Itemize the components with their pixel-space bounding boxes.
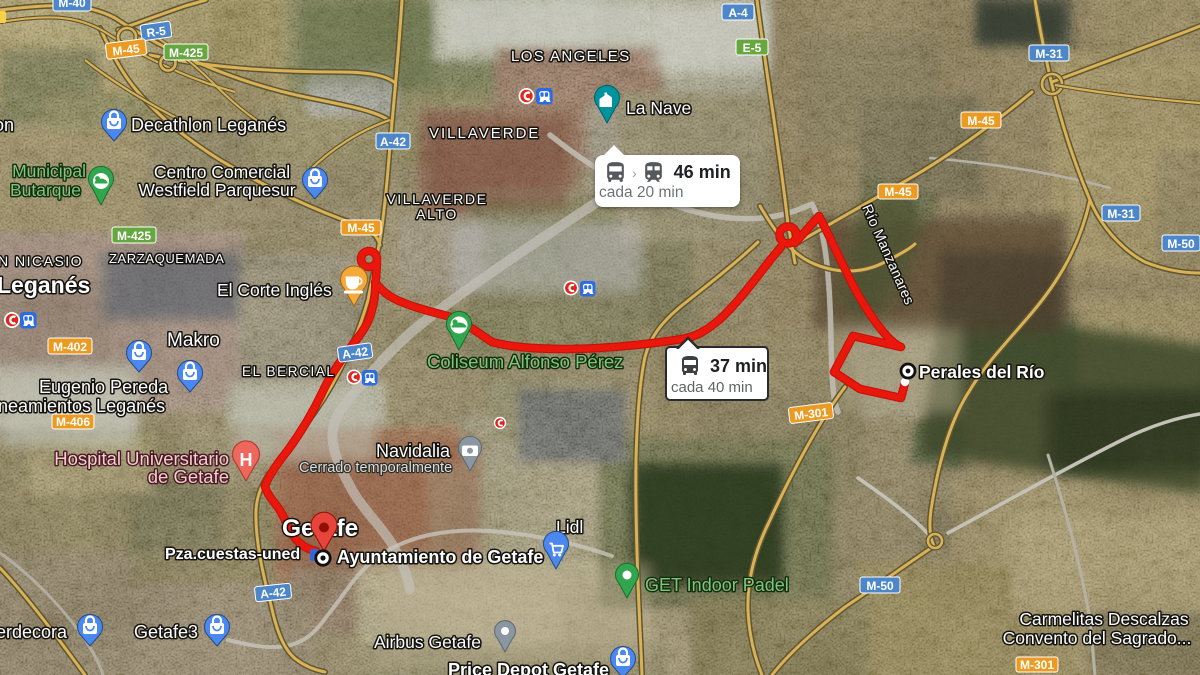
svg-text:A-4: A-4 bbox=[728, 6, 748, 20]
svg-text:Airbus Getafe: Airbus Getafe bbox=[374, 632, 481, 652]
svg-text:M-425: M-425 bbox=[169, 46, 203, 60]
svg-text:A-42: A-42 bbox=[259, 585, 287, 602]
svg-text:Price Depot Getafe: Price Depot Getafe bbox=[448, 660, 609, 675]
svg-text:Navidalia: Navidalia bbox=[376, 441, 451, 461]
svg-text:M-31: M-31 bbox=[1107, 207, 1135, 221]
svg-text:Convento del Sagrado...: Convento del Sagrado... bbox=[1003, 628, 1192, 648]
svg-text:de Getafe: de Getafe bbox=[148, 466, 229, 487]
svg-text:Westfield Parquesur: Westfield Parquesur bbox=[138, 180, 295, 200]
svg-text:GET Indoor Padel: GET Indoor Padel bbox=[645, 575, 789, 595]
svg-text:ALTO: ALTO bbox=[416, 206, 458, 222]
svg-text:Municipal: Municipal bbox=[12, 161, 86, 181]
svg-text:M-45: M-45 bbox=[967, 114, 995, 128]
svg-text:M-45: M-45 bbox=[347, 221, 375, 235]
svg-text:M-45: M-45 bbox=[884, 185, 912, 199]
svg-text:neamientos Leganés: neamientos Leganés bbox=[0, 396, 165, 416]
svg-text:M-50: M-50 bbox=[1167, 237, 1195, 251]
svg-text:Decathlon Leganés: Decathlon Leganés bbox=[131, 115, 286, 135]
svg-text:H: H bbox=[240, 450, 253, 470]
svg-text:Pza.cuestas-uned: Pza.cuestas-uned bbox=[165, 546, 300, 563]
svg-text:E-5: E-5 bbox=[743, 41, 762, 55]
svg-text:Eugenio Pereda: Eugenio Pereda bbox=[39, 377, 169, 397]
svg-text:Ayuntamiento de Getafe: Ayuntamiento de Getafe bbox=[337, 547, 543, 567]
svg-text:Perales del Río: Perales del Río bbox=[919, 362, 1044, 382]
svg-text:Cerrado temporalmente: Cerrado temporalmente bbox=[299, 460, 452, 476]
svg-text:Centro Comercial: Centro Comercial bbox=[154, 162, 290, 182]
svg-text:N NICASIO: N NICASIO bbox=[0, 253, 83, 269]
svg-text:R-5: R-5 bbox=[146, 24, 167, 41]
svg-text:M-406: M-406 bbox=[56, 415, 90, 429]
svg-text:M-425: M-425 bbox=[117, 229, 151, 243]
svg-text:El Corte Inglés: El Corte Inglés bbox=[217, 280, 332, 300]
svg-text:ZARZAQUEMADA: ZARZAQUEMADA bbox=[109, 251, 225, 266]
svg-text:Coliseum Alfonso Pérez: Coliseum Alfonso Pérez bbox=[427, 351, 623, 372]
svg-text:on: on bbox=[0, 115, 14, 135]
svg-text:A-42: A-42 bbox=[380, 135, 406, 149]
svg-text:VILLAVERDE: VILLAVERDE bbox=[429, 125, 540, 142]
svg-text:VILLAVERDE: VILLAVERDE bbox=[386, 191, 487, 207]
svg-text:M-301: M-301 bbox=[1020, 658, 1054, 672]
svg-text:M-31: M-31 bbox=[1035, 47, 1063, 61]
svg-text:Getafe3: Getafe3 bbox=[134, 622, 198, 642]
svg-text:Butarque: Butarque bbox=[10, 180, 81, 200]
svg-text:M-50: M-50 bbox=[866, 579, 894, 593]
svg-text:EL BERCIAL: EL BERCIAL bbox=[242, 364, 336, 379]
svg-text:Leganés: Leganés bbox=[0, 272, 90, 298]
svg-text:La Nave: La Nave bbox=[626, 98, 691, 118]
svg-text:LOS ANGELES: LOS ANGELES bbox=[511, 48, 631, 65]
svg-text:erdecora: erdecora bbox=[0, 622, 68, 642]
svg-text:Carmelitas Descalzas: Carmelitas Descalzas bbox=[1019, 609, 1188, 629]
svg-text:M-402: M-402 bbox=[53, 340, 87, 354]
svg-text:M-40: M-40 bbox=[58, 0, 86, 10]
svg-text:Makro: Makro bbox=[167, 330, 220, 351]
